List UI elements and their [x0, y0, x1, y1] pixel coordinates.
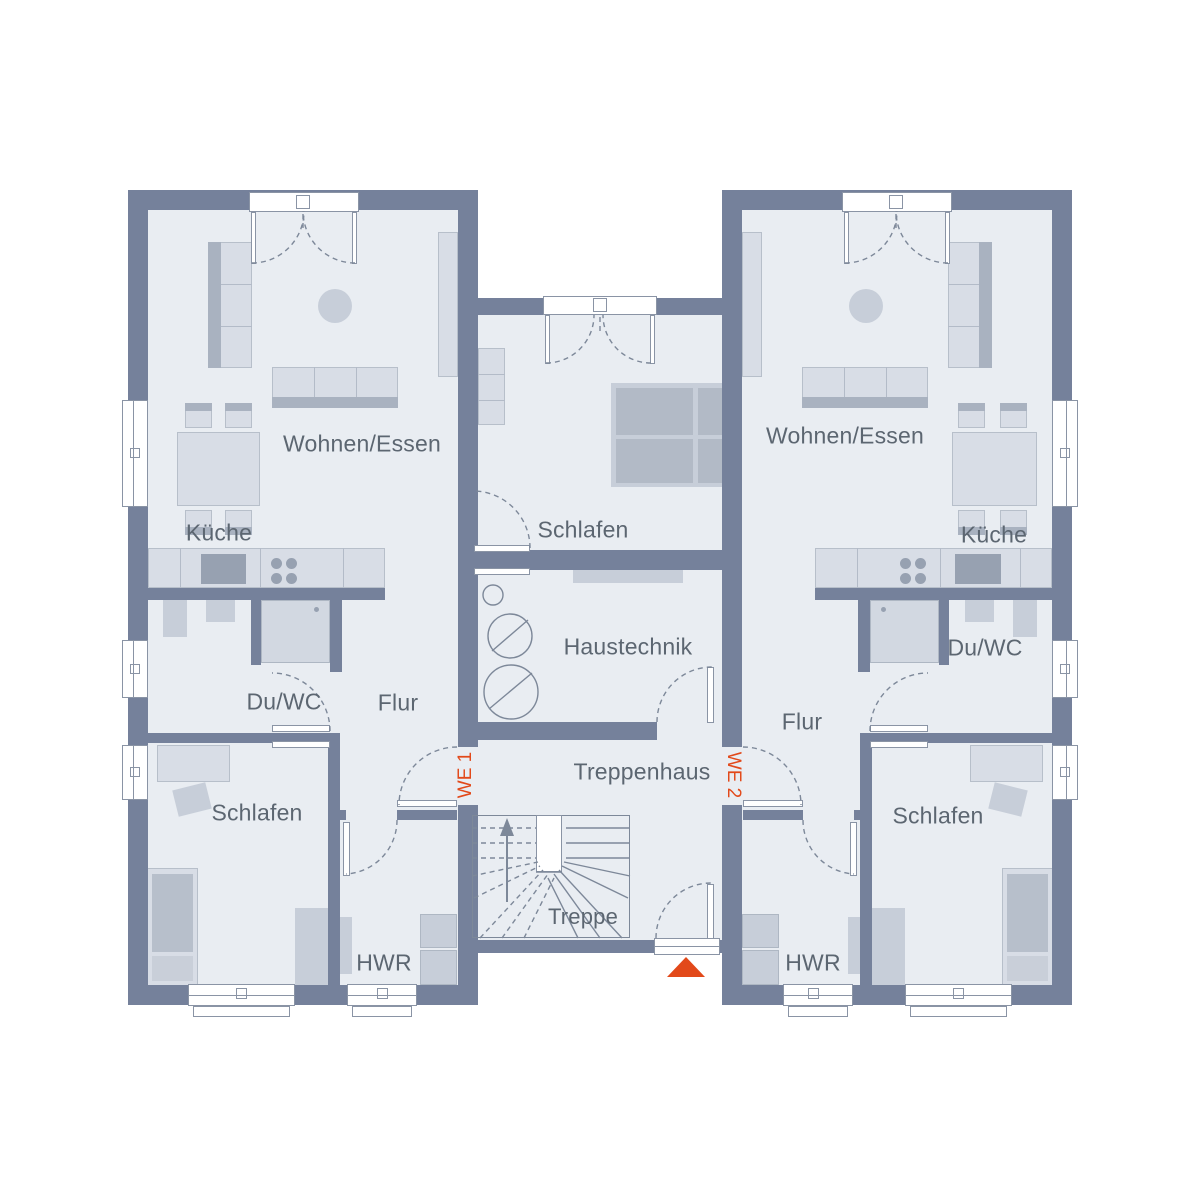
shelf-divider — [221, 284, 252, 285]
window-handle — [130, 767, 140, 777]
wall — [1052, 190, 1072, 1005]
chair-backrest — [958, 403, 985, 411]
corner-cabinet — [742, 232, 762, 377]
window-handle — [236, 988, 247, 999]
room-label-flur-right: Flur — [782, 709, 822, 736]
stove-burner — [286, 558, 297, 569]
door-leaf — [945, 212, 950, 264]
washing-machine — [420, 914, 457, 948]
stove-burner — [900, 573, 911, 584]
door-leaf — [844, 212, 849, 264]
chair-backrest — [1000, 403, 1027, 411]
door-handle-post — [889, 195, 903, 209]
wall-interior — [458, 550, 742, 570]
room-label-kueche-left: Küche — [186, 520, 252, 547]
unit-marker-we2: WE 2 — [722, 752, 744, 798]
door-leaf-hwr — [850, 822, 857, 876]
stove-burner — [915, 573, 926, 584]
window-frame-line — [347, 995, 417, 996]
door-threshold — [272, 725, 330, 732]
window-handle — [130, 664, 140, 674]
window-handle — [1060, 664, 1070, 674]
door-leaf-we1 — [397, 800, 457, 807]
stove-burner — [271, 558, 282, 569]
entrance-sill-line — [654, 946, 720, 947]
room-label-schlafen-right: Schlafen — [892, 803, 983, 830]
wall-interior — [330, 588, 342, 672]
floor-plan: Wohnen/Essen Küche Schlafen Wohnen/Essen… — [0, 0, 1200, 1200]
shelf-divider — [948, 284, 979, 285]
entrance-arrow — [667, 957, 705, 977]
dining-table — [177, 432, 260, 506]
room-label-treppe: Treppe — [548, 904, 618, 930]
stove-burner — [915, 558, 926, 569]
chair-backrest — [185, 403, 212, 411]
window-frame-line — [905, 995, 1012, 996]
shelf-divider — [221, 326, 252, 327]
room-label-du-wc-right: Du/WC — [947, 635, 1022, 662]
wall-interior — [148, 588, 385, 600]
door-leaf-entrance — [707, 884, 714, 940]
wall-interior — [251, 588, 261, 665]
counter-divider — [260, 548, 261, 588]
shower — [261, 600, 330, 663]
room-label-kueche-right: Küche — [961, 522, 1027, 549]
room-label-schlafen-left: Schlafen — [211, 800, 302, 827]
sofa-divider — [356, 367, 357, 397]
door-leaf-we2 — [743, 800, 803, 807]
bed-mattress — [1007, 874, 1048, 952]
wall-interior — [858, 588, 870, 672]
bed-mattress — [616, 439, 693, 483]
bed-foot — [152, 956, 193, 981]
window-sill — [193, 1006, 290, 1017]
door-threshold — [870, 741, 928, 748]
corner-cabinet — [438, 232, 458, 377]
window-frame-line — [133, 640, 134, 698]
window-frame-line — [1066, 745, 1067, 800]
kitchen-sink — [201, 554, 246, 584]
kitchen-counter — [148, 548, 385, 588]
wall-interior — [860, 743, 872, 985]
wardrobe-divider — [478, 400, 505, 401]
stove-burner — [271, 573, 282, 584]
window-frame-line — [133, 745, 134, 800]
wall — [128, 190, 148, 1005]
sofa-divider — [886, 367, 887, 397]
shelf-divider — [948, 326, 979, 327]
washing-machine — [742, 914, 779, 948]
kitchen-sink — [955, 554, 1001, 584]
bed-mattress — [152, 874, 193, 952]
dresser — [970, 745, 1043, 782]
counter-divider — [180, 548, 181, 588]
wall — [722, 985, 1072, 1005]
window-handle — [953, 988, 964, 999]
shower-drain — [881, 607, 886, 612]
toilet — [163, 600, 187, 637]
room-label-treppenhaus: Treppenhaus — [574, 759, 711, 786]
counter-divider — [857, 548, 858, 588]
door-threshold — [474, 568, 530, 575]
dryer — [420, 950, 457, 985]
window-handle — [130, 448, 140, 458]
bed-pillow — [698, 439, 723, 483]
room-label-du-wc-left: Du/WC — [246, 689, 321, 716]
door-threshold — [272, 741, 330, 748]
door-leaf — [251, 212, 256, 264]
sofa-divider — [314, 367, 315, 397]
door-opening-hwr-right — [803, 808, 854, 822]
room-label-wohnen-essen-right: Wohnen/Essen — [766, 423, 924, 450]
window-handle — [1060, 767, 1070, 777]
side-table — [318, 289, 352, 323]
door-leaf-haustechnik — [707, 667, 714, 723]
door-opening-hwr-left — [346, 808, 397, 822]
window-handle — [377, 988, 388, 999]
shelf-back-panel — [208, 242, 221, 368]
hwr-shelf — [340, 917, 352, 974]
cabinet — [295, 908, 328, 985]
toilet — [1013, 600, 1037, 637]
unit-marker-we1: WE 1 — [455, 752, 477, 798]
cabinet — [872, 908, 905, 985]
window-handle — [1060, 448, 1070, 458]
window-frame-line — [1066, 400, 1067, 507]
stair-well-notch — [536, 815, 562, 872]
wall-interior — [328, 743, 340, 985]
door-leaf — [545, 315, 550, 364]
sofa — [272, 367, 398, 398]
door-leaf — [352, 212, 357, 264]
window-handle — [808, 988, 819, 999]
counter-divider — [940, 548, 941, 588]
door-threshold — [870, 725, 928, 732]
kitchen-counter — [815, 548, 1052, 588]
door-leaf-hwr — [343, 822, 350, 876]
room-label-hwr-right: HWR — [785, 950, 841, 977]
washbasin — [206, 600, 235, 622]
window-frame-line — [188, 995, 295, 996]
bed-pillow — [698, 388, 723, 435]
window-frame-line — [783, 995, 853, 996]
washbasin — [965, 600, 994, 622]
hwr-shelf — [848, 917, 860, 974]
shower-drain — [314, 607, 319, 612]
room-label-schlafen-center: Schlafen — [537, 517, 628, 544]
window-sill — [910, 1006, 1007, 1017]
shelf-back-panel — [979, 242, 992, 368]
room-label-hwr-left: HWR — [356, 950, 412, 977]
wall-interior — [815, 588, 1052, 600]
window-sill — [788, 1006, 848, 1017]
wall-interior — [472, 722, 657, 740]
wardrobe-divider — [478, 374, 505, 375]
wall — [128, 985, 478, 1005]
stove-burner — [900, 558, 911, 569]
chair-backrest — [225, 403, 252, 411]
door-handle-post — [593, 298, 607, 312]
stove-burner — [286, 573, 297, 584]
bed-foot — [1007, 956, 1048, 981]
door-threshold — [474, 545, 530, 552]
sofa — [802, 367, 928, 398]
dresser — [157, 745, 230, 782]
room-label-wohnen-essen-left: Wohnen/Essen — [283, 431, 441, 458]
dining-table — [952, 432, 1037, 506]
utility-shelf — [573, 570, 683, 583]
dryer — [742, 950, 779, 985]
bed-mattress — [616, 388, 693, 435]
door-handle-post — [296, 195, 310, 209]
side-table — [849, 289, 883, 323]
sofa-divider — [844, 367, 845, 397]
sofa-base — [272, 397, 398, 408]
window-frame-line — [133, 400, 134, 507]
window-frame-line — [1066, 640, 1067, 698]
sofa-base — [802, 397, 928, 408]
wardrobe — [478, 348, 505, 425]
counter-divider — [1020, 548, 1021, 588]
counter-divider — [343, 548, 344, 588]
room-label-flur-left: Flur — [378, 690, 418, 717]
room-label-haustechnik: Haustechnik — [564, 634, 693, 661]
window-sill — [352, 1006, 412, 1017]
door-leaf — [650, 315, 655, 364]
